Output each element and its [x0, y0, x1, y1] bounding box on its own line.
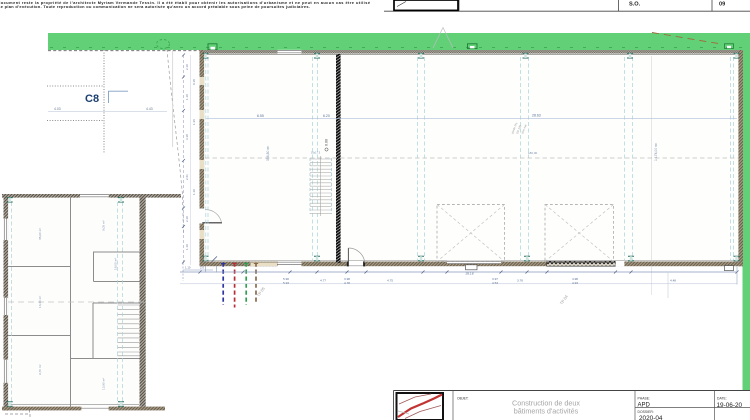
svg-text:OBJET:: OBJET:: [457, 397, 469, 401]
svg-text:9,70 m²: 9,70 m²: [38, 365, 42, 376]
svg-text:C8: C8: [85, 93, 99, 105]
svg-text:1.10: 1.10: [185, 266, 191, 270]
svg-text:6.20: 6.20: [323, 114, 330, 118]
svg-text:PHASE:: PHASE:: [638, 397, 650, 401]
svg-text:1.10: 1.10: [192, 189, 196, 195]
svg-text:1.10: 1.10: [185, 244, 189, 250]
svg-text:0.00: 0.00: [325, 139, 329, 146]
svg-text:1 174,00 m²: 1 174,00 m²: [654, 142, 658, 161]
svg-text:2.61: 2.61: [185, 174, 189, 180]
svg-text:TP 05: TP 05: [256, 285, 267, 297]
svg-text:1.10: 1.10: [185, 94, 189, 100]
svg-text:09: 09: [719, 2, 725, 8]
svg-text:4.75: 4.75: [387, 279, 393, 283]
svg-text:16x17.5: 16x17.5: [311, 151, 321, 155]
svg-text:4.93: 4.93: [572, 281, 578, 285]
svg-text:4.78: 4.78: [344, 281, 350, 285]
svg-text:3.76: 3.76: [517, 279, 523, 283]
svg-text:4.43: 4.43: [146, 107, 153, 111]
svg-text:4.77: 4.77: [320, 279, 326, 283]
svg-text:0.18: 0.18: [192, 79, 196, 85]
svg-text:1.36: 1.36: [192, 119, 196, 125]
svg-text:180,00: 180,00: [528, 151, 538, 155]
svg-text:356,80 m²: 356,80 m²: [266, 145, 270, 161]
svg-text:19-06-20: 19-06-20: [717, 402, 743, 409]
svg-text:ne plan d'exécution. Toute rep: ne plan d'exécution. Toute reproduction …: [0, 4, 310, 9]
svg-text:35,60 m²: 35,60 m²: [38, 228, 42, 240]
svg-text:6.55: 6.55: [257, 114, 264, 118]
svg-text:2.0: 2.0: [200, 266, 204, 270]
svg-text:bâtiments d'activités: bâtiments d'activités: [514, 407, 579, 416]
svg-text:28.63: 28.63: [532, 114, 541, 118]
svg-text:APD: APD: [638, 403, 651, 409]
svg-text:9,05 m²: 9,05 m²: [102, 221, 106, 232]
svg-text:4.48: 4.48: [670, 279, 676, 283]
svg-text:2.10: 2.10: [185, 64, 189, 70]
svg-text:4.03: 4.03: [54, 107, 61, 111]
svg-text:2.10: 2.10: [185, 216, 189, 222]
svg-text:4.53: 4.53: [492, 281, 498, 285]
svg-text:DATE:: DATE:: [717, 397, 727, 401]
svg-text:13,40 m²: 13,40 m²: [38, 296, 42, 308]
svg-text:13,90 m²: 13,90 m²: [102, 378, 106, 390]
svg-text:5.93: 5.93: [283, 281, 289, 285]
svg-text:TP 04: TP 04: [559, 293, 570, 305]
svg-text:18,00 m²: 18,00 m²: [114, 258, 118, 270]
svg-text:S.O.: S.O.: [629, 2, 641, 8]
svg-text:DOSSIER:: DOSSIER:: [638, 410, 654, 414]
svg-text:2020-04: 2020-04: [639, 415, 663, 420]
svg-text:3.18: 3.18: [185, 134, 189, 140]
